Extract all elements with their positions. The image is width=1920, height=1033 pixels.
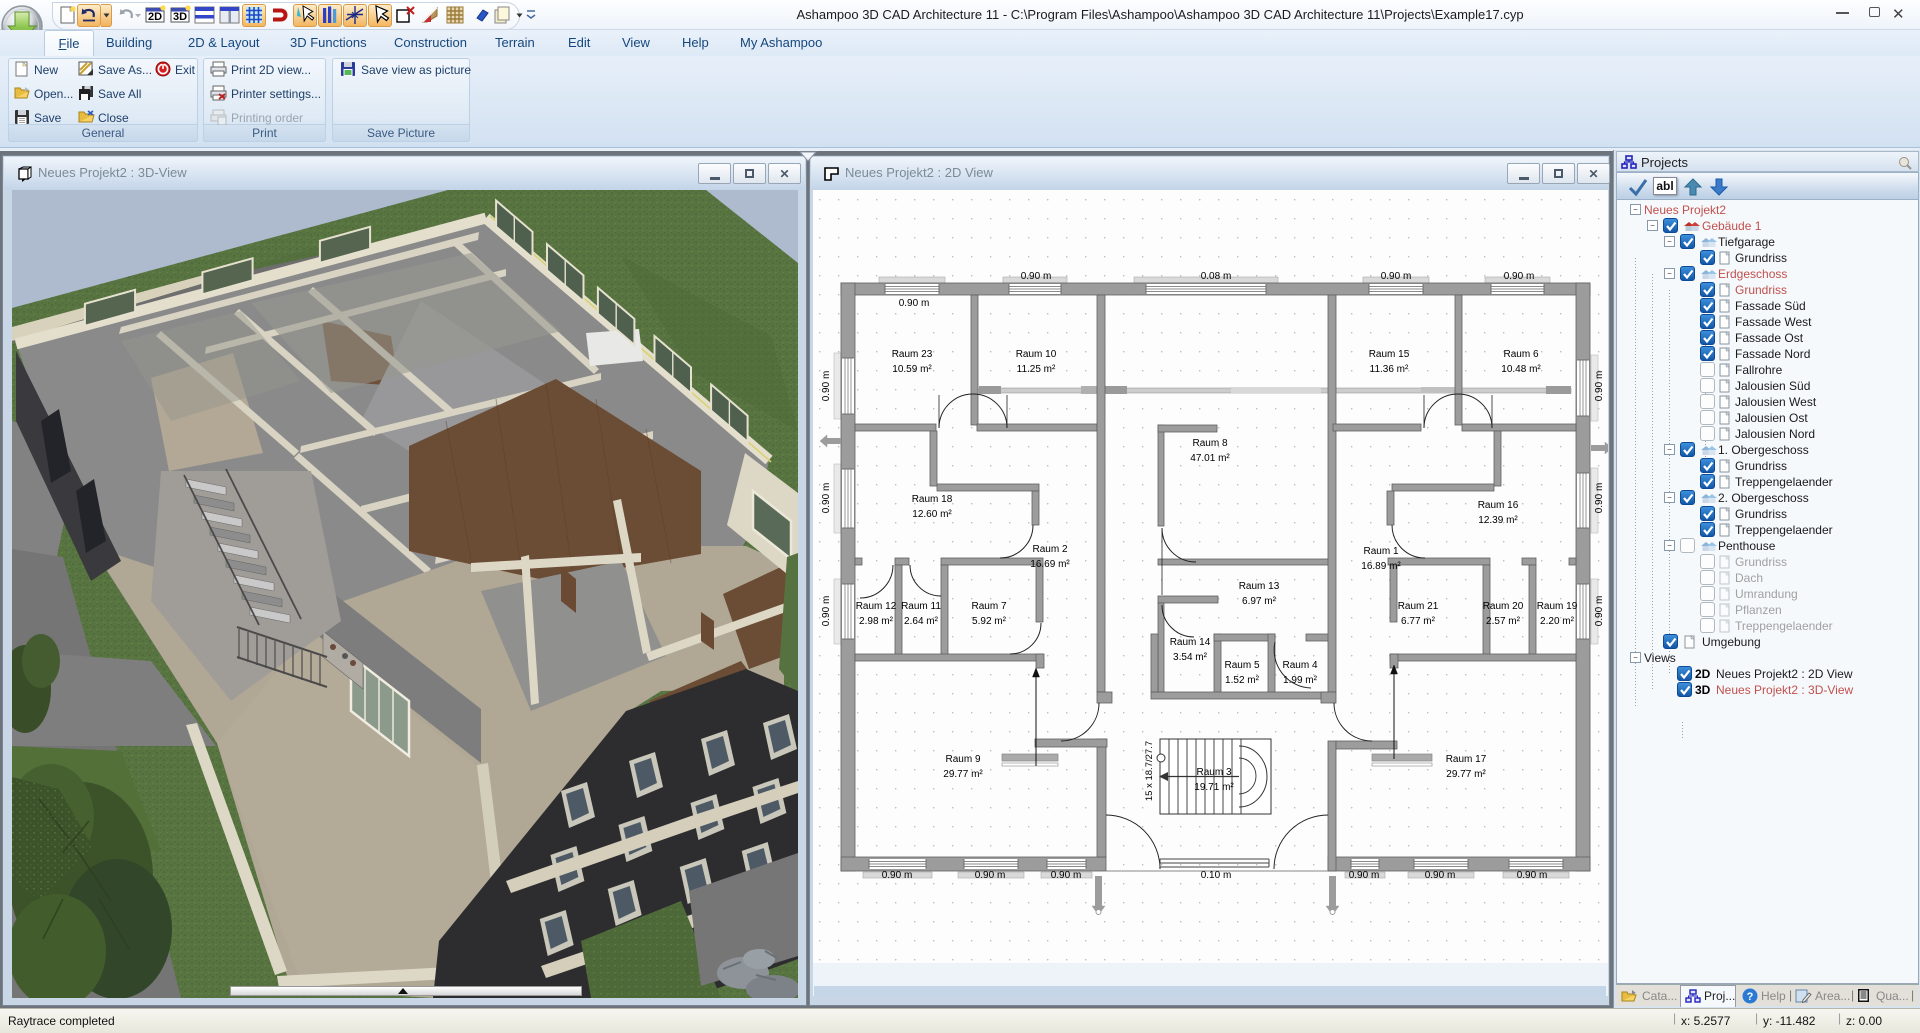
- svg-text:Raum 4: Raum 4: [1282, 660, 1317, 671]
- svg-text:0.10 m: 0.10 m: [1201, 870, 1232, 881]
- svg-text:Raum 18: Raum 18: [912, 494, 953, 505]
- svg-text:Raum 11: Raum 11: [901, 601, 941, 612]
- svg-text:0.90 m: 0.90 m: [1349, 870, 1380, 881]
- svg-text:29.77 m²: 29.77 m²: [943, 769, 983, 780]
- svg-text:11.36 m²: 11.36 m²: [1370, 364, 1409, 375]
- svg-text:0.90 m: 0.90 m: [1021, 271, 1052, 282]
- svg-text:12.39 m²: 12.39 m²: [1478, 515, 1518, 526]
- svg-text:Raum 23: Raum 23: [892, 349, 933, 360]
- svg-text:0.90 m: 0.90 m: [1504, 271, 1535, 282]
- svg-text:?: ?: [1747, 991, 1754, 1003]
- svg-text:0.90 m: 0.90 m: [1594, 596, 1605, 627]
- svg-text:16.69 m²: 16.69 m²: [1030, 559, 1070, 570]
- svg-text:0.90 m: 0.90 m: [1594, 483, 1605, 514]
- svg-text:0.90 m: 0.90 m: [882, 870, 913, 881]
- svg-text:10.48 m²: 10.48 m²: [1501, 364, 1541, 375]
- svg-text:6.77 m²: 6.77 m²: [1401, 616, 1436, 627]
- svg-text:Raum 7: Raum 7: [971, 601, 1006, 612]
- svg-text:Raum 10: Raum 10: [1016, 349, 1057, 360]
- svg-text:Raum 15: Raum 15: [1369, 349, 1410, 360]
- svg-text:2.98 m²: 2.98 m²: [859, 616, 894, 627]
- svg-text:Raum 13: Raum 13: [1239, 581, 1280, 592]
- svg-text:2.64 m²: 2.64 m²: [904, 616, 939, 627]
- svg-text:3D: 3D: [173, 11, 187, 23]
- svg-text:Raum 2: Raum 2: [1032, 544, 1067, 555]
- svg-text:11.25 m²: 11.25 m²: [1017, 364, 1056, 375]
- svg-text:15 x 18.7/27.7: 15 x 18.7/27.7: [1144, 741, 1155, 801]
- svg-text:47.01 m²: 47.01 m²: [1190, 453, 1230, 464]
- svg-text:0.90 m: 0.90 m: [1594, 371, 1605, 402]
- svg-text:0.90 m: 0.90 m: [1517, 870, 1548, 881]
- svg-text:Raum 3: Raum 3: [1196, 767, 1231, 778]
- svg-text:6.97 m²: 6.97 m²: [1242, 596, 1277, 607]
- svg-text:12.60 m²: 12.60 m²: [912, 509, 952, 520]
- svg-text:0.90 m: 0.90 m: [821, 483, 832, 514]
- svg-text:0.90 m: 0.90 m: [821, 596, 832, 627]
- svg-text:0.90 m: 0.90 m: [1425, 870, 1456, 881]
- svg-text:2.57 m²: 2.57 m²: [1486, 616, 1521, 627]
- svg-text:Raum 8: Raum 8: [1192, 438, 1227, 449]
- svg-text:Raum 6: Raum 6: [1503, 349, 1538, 360]
- svg-text:29.77 m²: 29.77 m²: [1446, 769, 1486, 780]
- svg-text:0.90 m: 0.90 m: [821, 371, 832, 402]
- svg-text:Raum 17: Raum 17: [1446, 754, 1487, 765]
- svg-text:Raum 9: Raum 9: [945, 754, 980, 765]
- svg-text:Raum 12: Raum 12: [856, 601, 897, 612]
- svg-text:Raum 21: Raum 21: [1398, 601, 1439, 612]
- svg-text:2.20 m²: 2.20 m²: [1540, 616, 1575, 627]
- svg-text:0.90 m: 0.90 m: [1051, 870, 1082, 881]
- svg-text:0.90 m: 0.90 m: [975, 870, 1006, 881]
- svg-text:19.71 m²: 19.71 m²: [1194, 782, 1234, 793]
- svg-text:3.54 m²: 3.54 m²: [1173, 652, 1208, 663]
- svg-text:Raum 19: Raum 19: [1537, 601, 1578, 612]
- svg-text:0.90 m: 0.90 m: [899, 298, 930, 309]
- svg-text:Raum 20: Raum 20: [1483, 601, 1524, 612]
- svg-text:5.92 m²: 5.92 m²: [972, 616, 1007, 627]
- svg-text:Raum 1: Raum 1: [1363, 546, 1398, 557]
- svg-text:1.52 m²: 1.52 m²: [1225, 675, 1260, 686]
- svg-text:16.89 m²: 16.89 m²: [1361, 561, 1401, 572]
- svg-text:Raum 16: Raum 16: [1478, 500, 1519, 511]
- svg-text:1.99 m²: 1.99 m²: [1283, 675, 1318, 686]
- svg-text:10.59 m²: 10.59 m²: [892, 364, 932, 375]
- svg-text:0.08 m: 0.08 m: [1201, 271, 1232, 282]
- svg-text:0.90 m: 0.90 m: [1381, 271, 1412, 282]
- svg-text:Raum 5: Raum 5: [1224, 660, 1259, 671]
- svg-text:Raum 14: Raum 14: [1170, 637, 1211, 648]
- svg-text:2D: 2D: [148, 11, 162, 23]
